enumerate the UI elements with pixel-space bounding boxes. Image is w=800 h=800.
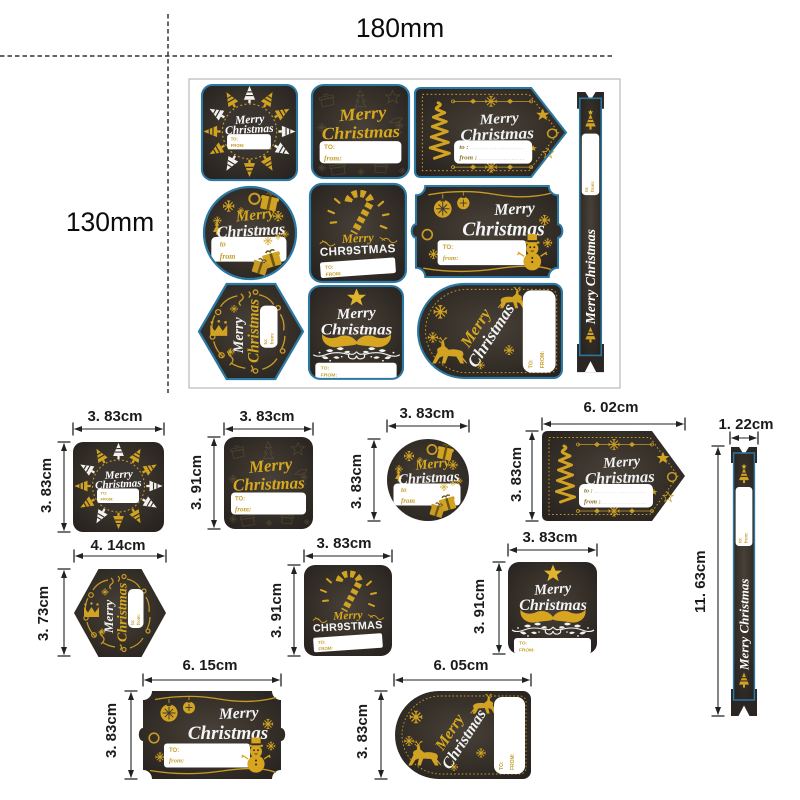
svg-text:6. 15cm: 6. 15cm (182, 657, 237, 674)
svg-text:3. 83cm: 3. 83cm (316, 535, 371, 552)
svg-text:3. 83cm: 3. 83cm (38, 458, 55, 513)
svg-text:6. 02cm: 6. 02cm (583, 399, 638, 416)
svg-text:3. 73cm: 3. 73cm (35, 586, 52, 641)
svg-text:3. 83cm: 3. 83cm (348, 454, 365, 509)
svg-text:3. 91cm: 3. 91cm (188, 455, 205, 510)
svg-text:1. 22cm: 1. 22cm (718, 416, 773, 433)
svg-text:3. 91cm: 3. 91cm (268, 583, 285, 638)
svg-text:3. 83cm: 3. 83cm (103, 703, 120, 758)
svg-text:3. 83cm: 3. 83cm (354, 704, 371, 759)
svg-text:3. 83cm: 3. 83cm (239, 408, 294, 425)
svg-text:3. 83cm: 3. 83cm (399, 405, 454, 422)
svg-text:3. 83cm: 3. 83cm (87, 408, 142, 425)
svg-text:180mm: 180mm (356, 13, 444, 43)
svg-text:3. 83cm: 3. 83cm (508, 447, 525, 502)
svg-text:3. 91cm: 3. 91cm (471, 579, 488, 634)
svg-text:130mm: 130mm (66, 207, 154, 237)
svg-text:11. 63cm: 11. 63cm (692, 550, 709, 613)
svg-text:4. 14cm: 4. 14cm (90, 537, 145, 554)
svg-text:6. 05cm: 6. 05cm (433, 657, 488, 674)
svg-text:3. 83cm: 3. 83cm (522, 529, 577, 546)
